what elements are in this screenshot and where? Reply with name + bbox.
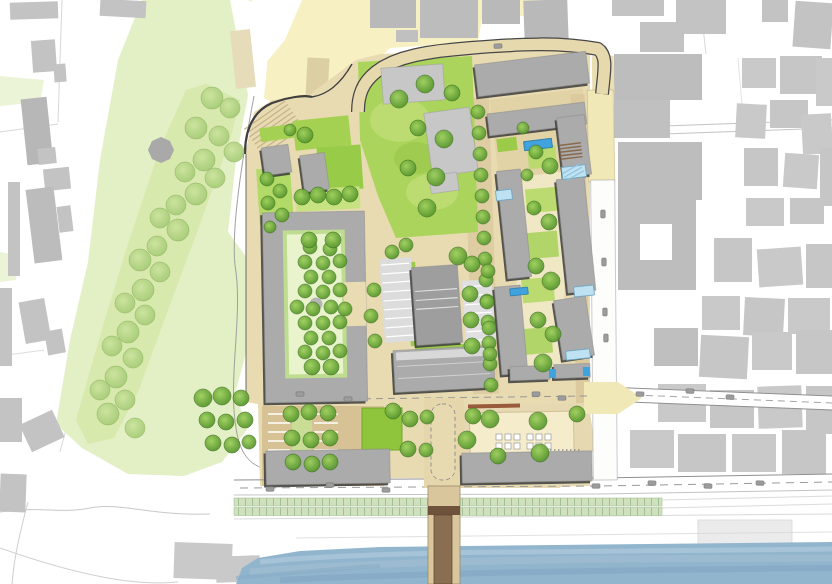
context-buildings <box>757 247 804 288</box>
context-buildings <box>744 148 778 186</box>
orchard-trees <box>304 270 318 284</box>
tree <box>115 293 135 313</box>
car-symbol <box>326 483 334 488</box>
tree <box>542 272 560 290</box>
orchard-trees <box>304 331 318 345</box>
tree <box>220 98 240 118</box>
car-symbol <box>686 389 694 394</box>
tree <box>261 196 275 210</box>
orchard-trees <box>298 284 312 298</box>
tree <box>481 264 495 278</box>
tree <box>326 189 342 205</box>
bridge-abutment <box>428 506 460 515</box>
pavilion-pool-a <box>549 369 556 378</box>
context-buildings <box>742 58 776 88</box>
orchard-trees <box>322 331 336 345</box>
tree <box>273 184 287 198</box>
se-street-building <box>460 451 593 486</box>
tree <box>260 172 274 186</box>
tree <box>297 127 313 143</box>
context-buildings <box>0 288 12 366</box>
context-buildings <box>735 103 767 139</box>
context-buildings <box>640 224 672 260</box>
tree <box>125 418 145 438</box>
context-buildings <box>654 328 698 366</box>
sw-court-trees <box>303 432 319 448</box>
tree <box>464 256 480 272</box>
context-buildings <box>0 474 27 513</box>
tree <box>367 283 381 297</box>
car-symbol <box>382 488 390 493</box>
glass-canopy-d <box>495 189 512 201</box>
tree <box>541 214 557 230</box>
orchard-trees <box>324 300 338 314</box>
street-tree-row <box>476 210 490 224</box>
west-street-trees <box>233 390 249 406</box>
orchard-trees <box>333 283 347 297</box>
context-buildings <box>678 434 726 472</box>
street-tree-row <box>471 105 485 119</box>
tree <box>368 334 382 348</box>
context-buildings <box>53 64 66 83</box>
car-symbol <box>602 258 607 266</box>
tree <box>528 258 544 274</box>
car-symbol <box>532 392 540 397</box>
south-trees <box>402 411 418 427</box>
tree <box>482 321 496 335</box>
tree <box>175 162 195 182</box>
tree <box>545 326 561 342</box>
south-trees <box>419 443 433 457</box>
tree <box>444 85 460 101</box>
tree <box>517 122 529 134</box>
street-tree-row <box>475 189 489 203</box>
car-symbol <box>704 484 712 489</box>
west-street-trees <box>213 387 231 405</box>
south-trees <box>569 406 585 422</box>
west-street-trees <box>224 437 240 453</box>
context-buildings <box>420 0 478 38</box>
tree <box>294 189 310 205</box>
context-buildings <box>702 296 740 330</box>
tree <box>150 262 170 282</box>
context-buildings <box>640 22 684 52</box>
sw-court-trees <box>283 406 299 422</box>
orchard-trees <box>301 232 317 248</box>
tree <box>185 183 207 205</box>
west-street-trees <box>218 414 234 430</box>
tree <box>150 208 170 228</box>
car-symbol <box>558 396 566 401</box>
tree <box>385 245 399 259</box>
tree <box>410 120 426 136</box>
context-buildings <box>31 39 57 73</box>
car-symbol <box>296 392 304 397</box>
tree <box>115 390 135 410</box>
tree <box>527 201 541 215</box>
tree <box>483 347 497 361</box>
bridge-pier <box>434 515 452 584</box>
tree <box>390 90 408 108</box>
sw-court-trees <box>304 456 320 472</box>
tree <box>534 354 552 372</box>
pavilion-pool-b <box>583 367 590 376</box>
bus-median <box>431 404 455 480</box>
orchard-trees <box>333 254 347 268</box>
sw-court-trees <box>285 454 301 470</box>
context-buildings <box>788 298 830 334</box>
car-symbol <box>603 308 608 316</box>
tree <box>275 208 289 222</box>
court-pool <box>510 287 529 296</box>
context-buildings <box>746 198 784 226</box>
tree <box>129 249 151 271</box>
orchard-trees <box>298 316 312 330</box>
car-symbol <box>756 481 764 486</box>
tree <box>464 338 480 354</box>
orchard-trees <box>290 300 304 314</box>
tree <box>193 149 215 171</box>
street-tree-row <box>474 168 488 182</box>
car-symbol <box>494 44 502 49</box>
orchard-trees <box>333 315 347 329</box>
site-plan-drawing <box>0 0 832 584</box>
context-buildings <box>783 153 819 189</box>
tree <box>463 312 479 328</box>
tree <box>399 238 413 252</box>
tree <box>90 380 110 400</box>
tree <box>416 75 434 93</box>
car-symbol <box>726 395 734 400</box>
orchard-trees <box>323 359 339 375</box>
street-tree-row <box>473 147 487 161</box>
tree <box>97 403 119 425</box>
tree <box>166 195 186 215</box>
tree <box>542 158 558 174</box>
south-trees <box>490 448 506 464</box>
context-buildings <box>816 58 832 106</box>
glass-canopy-c <box>566 349 591 360</box>
street-tree-row <box>472 126 486 140</box>
context-buildings <box>370 0 416 28</box>
orchard-trees <box>338 302 352 316</box>
south-trees <box>458 431 476 449</box>
tree <box>209 126 229 146</box>
masterplan-canvas <box>0 0 832 584</box>
south-trees <box>481 410 499 428</box>
tree <box>201 87 223 109</box>
south-trees <box>531 444 549 462</box>
tree <box>529 145 543 159</box>
context-buildings <box>732 434 776 472</box>
greens <box>496 137 517 152</box>
orchard-trees <box>298 345 312 359</box>
tree <box>117 321 139 343</box>
orchard-trees <box>316 346 330 360</box>
west-street-trees <box>194 389 212 407</box>
orchard-trees <box>322 270 336 284</box>
tree <box>185 117 207 139</box>
tree <box>310 187 326 203</box>
south-trees <box>420 410 434 424</box>
car-symbol <box>601 210 606 218</box>
context-buildings <box>806 244 832 288</box>
context-buildings <box>782 430 826 474</box>
sw-court-trees <box>322 430 338 446</box>
orchard-trees <box>304 359 320 375</box>
context-buildings <box>630 430 674 468</box>
bridge <box>424 398 464 584</box>
tree <box>530 312 546 328</box>
context-buildings <box>614 100 670 138</box>
sw-court-trees <box>322 454 338 470</box>
tree <box>123 348 143 368</box>
sw-court-trees <box>283 404 338 472</box>
west-street-trees <box>199 412 215 428</box>
context-buildings <box>780 56 822 94</box>
car-symbol <box>266 487 274 492</box>
context-buildings <box>762 0 788 22</box>
context-buildings <box>820 148 832 206</box>
context-buildings <box>714 238 752 282</box>
sw-court-trees <box>320 405 336 421</box>
sw-court-trees <box>301 404 317 420</box>
context-buildings <box>618 142 702 200</box>
orchard-trees <box>333 344 347 358</box>
car-symbol <box>648 481 656 486</box>
orchard-trees <box>298 255 312 269</box>
context-buildings <box>396 30 418 42</box>
context-buildings <box>743 297 785 337</box>
tree <box>521 169 533 181</box>
orchard-trees <box>325 232 341 248</box>
car-symbol <box>636 392 644 397</box>
tree <box>364 309 378 323</box>
south-trees <box>465 408 481 424</box>
tree <box>264 221 276 233</box>
context-buildings <box>792 1 832 50</box>
context-buildings <box>10 1 59 20</box>
tree <box>284 124 296 136</box>
west-street-trees <box>242 435 256 449</box>
tree <box>480 295 494 309</box>
tree <box>224 142 244 162</box>
context-buildings <box>482 0 520 24</box>
west-street-trees <box>237 412 253 428</box>
car-symbol <box>604 334 609 342</box>
tree <box>342 186 358 202</box>
tree <box>418 199 436 217</box>
context-buildings <box>612 0 664 16</box>
car-symbol <box>592 484 600 489</box>
south-trees <box>385 403 401 419</box>
tree <box>435 130 453 148</box>
tree <box>400 160 416 176</box>
west-street-trees <box>205 435 221 451</box>
tree <box>167 219 189 241</box>
orchard-trees <box>316 316 330 330</box>
tree <box>135 305 155 325</box>
context-buildings <box>699 335 749 379</box>
south-trees <box>529 412 547 430</box>
tree <box>205 168 225 188</box>
context-buildings <box>614 54 702 100</box>
glass-canopy-b <box>574 285 595 297</box>
sw-court-trees <box>284 430 300 446</box>
context-buildings <box>796 330 832 374</box>
context-buildings <box>752 332 792 370</box>
street-tree-row <box>484 378 498 392</box>
street-tree-row <box>477 231 491 245</box>
context-buildings <box>790 198 824 224</box>
tree <box>132 279 154 301</box>
south-trees <box>400 441 416 457</box>
north-south-street-white <box>591 180 618 480</box>
tree <box>102 336 122 356</box>
orchard-trees <box>306 302 320 316</box>
car-symbol <box>344 397 352 402</box>
orchard-trees <box>316 256 330 270</box>
tree <box>427 168 445 186</box>
context-buildings <box>100 0 147 18</box>
orchard-trees <box>316 285 330 299</box>
context-buildings <box>0 398 22 442</box>
north-south-street-cream <box>587 90 615 182</box>
tree <box>147 236 167 256</box>
context-buildings <box>8 182 20 276</box>
tree <box>462 286 478 302</box>
context-buildings <box>37 147 57 165</box>
